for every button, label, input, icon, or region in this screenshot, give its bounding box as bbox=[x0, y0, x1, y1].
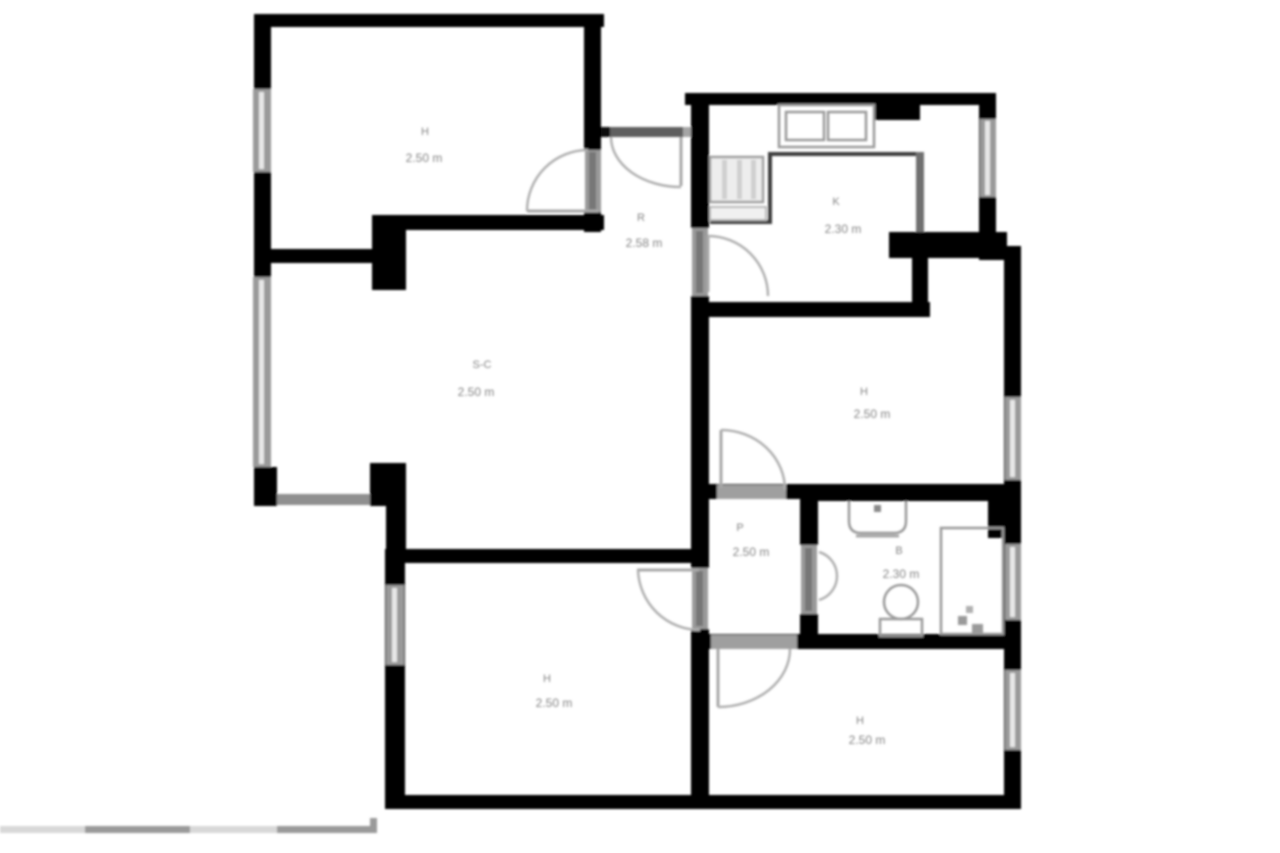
svg-text:B: B bbox=[895, 545, 902, 557]
svg-text:2.30 m: 2.30 m bbox=[825, 222, 862, 236]
svg-text:2.30 m: 2.30 m bbox=[883, 567, 920, 581]
svg-text:2.50 m: 2.50 m bbox=[536, 696, 573, 710]
svg-text:2.50 m: 2.50 m bbox=[733, 545, 770, 559]
svg-text:R: R bbox=[637, 212, 645, 224]
svg-text:H: H bbox=[421, 126, 429, 138]
svg-text:2.58 m: 2.58 m bbox=[626, 236, 663, 250]
svg-text:2.50 m: 2.50 m bbox=[849, 733, 886, 747]
svg-text:2.50 m: 2.50 m bbox=[458, 385, 495, 399]
svg-text:S-C: S-C bbox=[473, 359, 492, 371]
svg-text:P: P bbox=[736, 522, 743, 534]
svg-text:2.50 m: 2.50 m bbox=[406, 151, 443, 165]
svg-text:2.50 m: 2.50 m bbox=[854, 407, 891, 421]
svg-text:H: H bbox=[543, 673, 551, 685]
svg-text:H: H bbox=[860, 386, 868, 398]
svg-text:K: K bbox=[832, 196, 840, 208]
svg-text:H: H bbox=[856, 715, 864, 727]
